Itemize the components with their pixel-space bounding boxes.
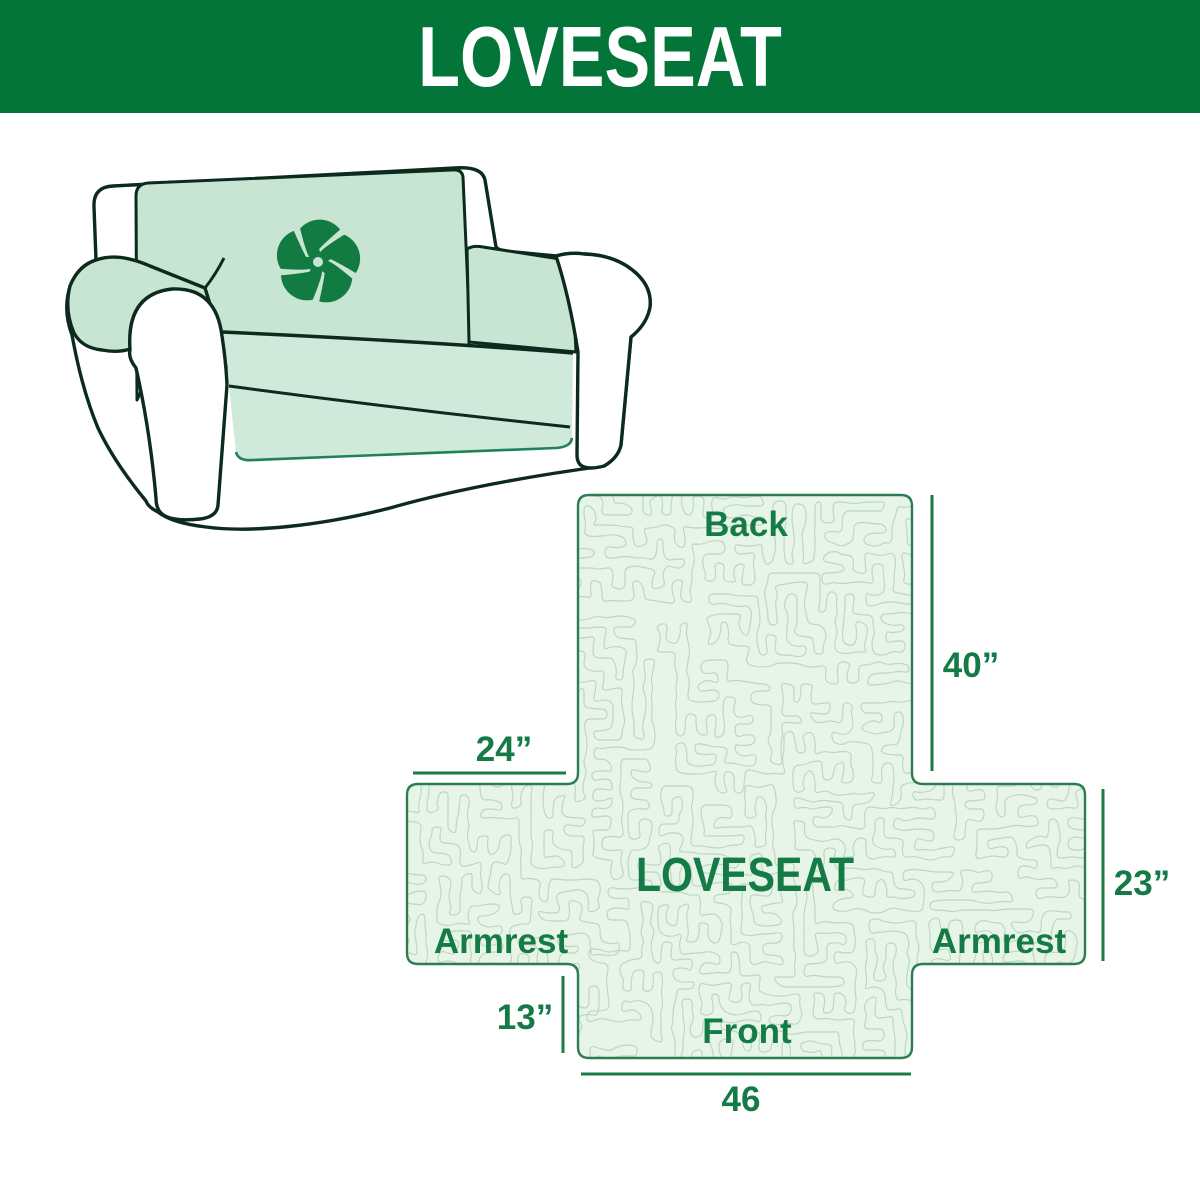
svg-text:46: 46 <box>722 1080 761 1119</box>
svg-text:40”: 40” <box>943 646 999 685</box>
svg-text:24”: 24” <box>476 730 532 769</box>
svg-text:Front: Front <box>702 1012 792 1051</box>
svg-text:Armrest: Armrest <box>932 922 1067 961</box>
svg-text:23”: 23” <box>1114 864 1170 903</box>
svg-text:LOVESEAT: LOVESEAT <box>636 849 854 902</box>
svg-text:Back: Back <box>704 505 788 544</box>
svg-text:Armrest: Armrest <box>434 922 569 961</box>
svg-text:13”: 13” <box>497 998 553 1037</box>
